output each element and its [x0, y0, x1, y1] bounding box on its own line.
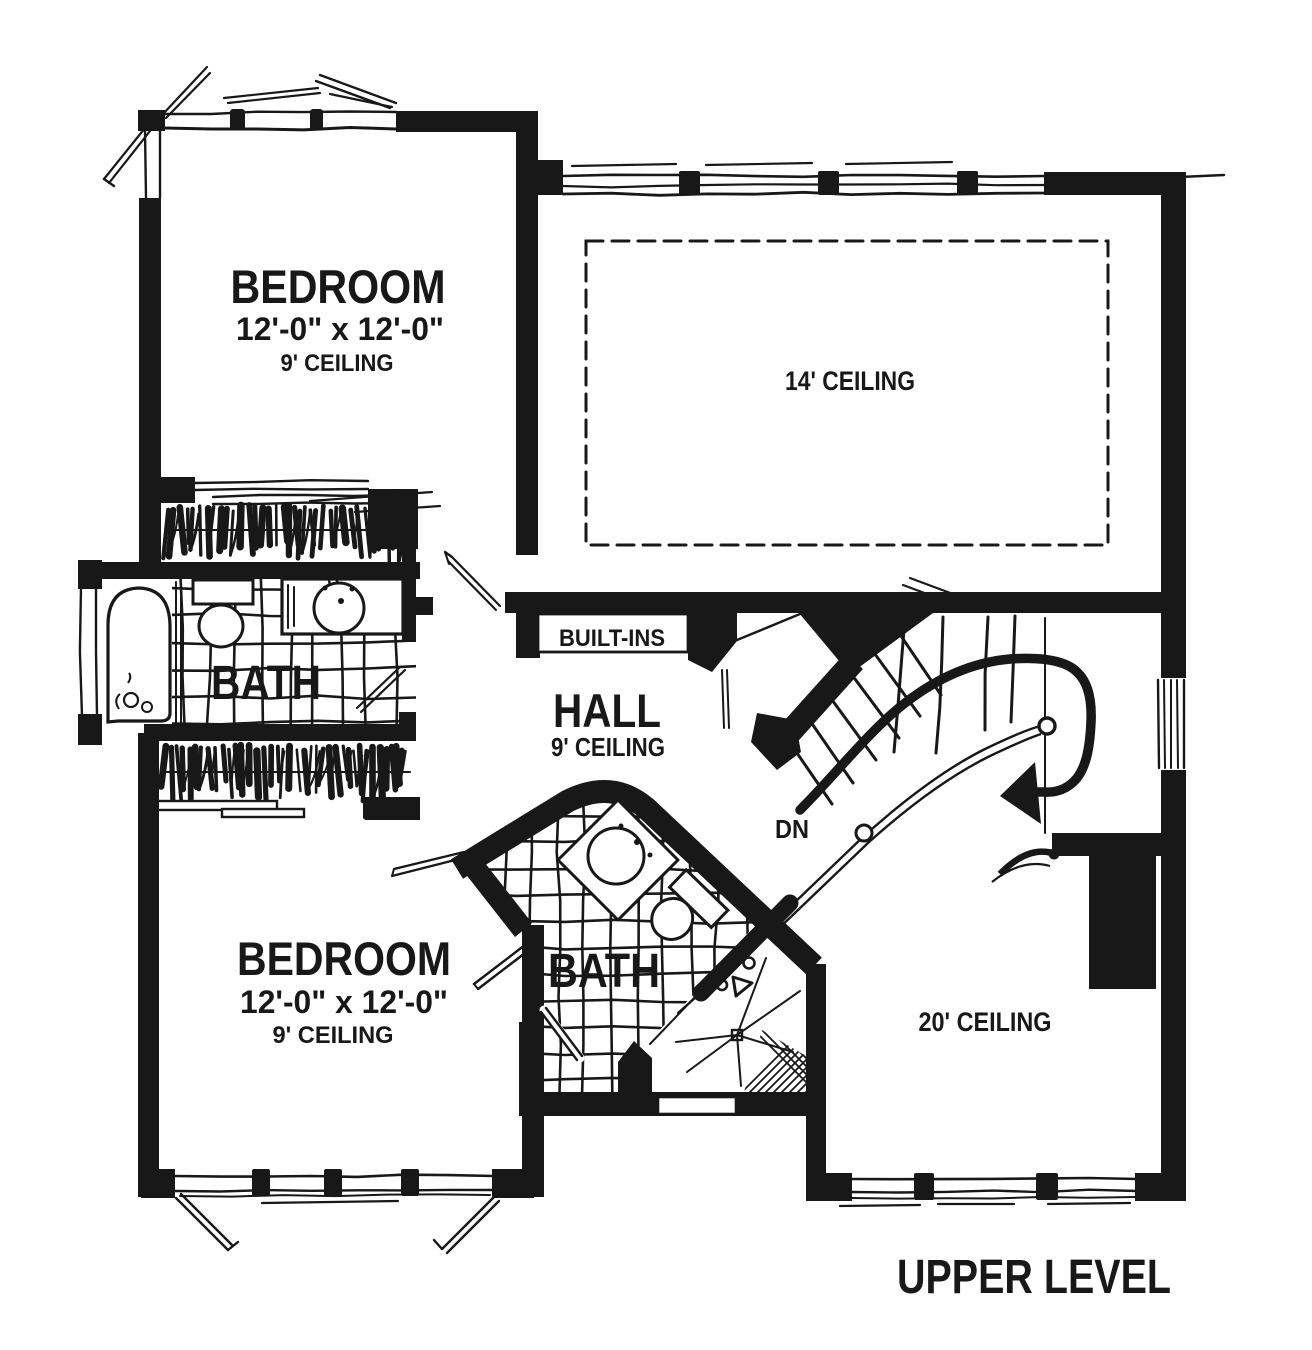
svg-text:BATH: BATH: [211, 657, 321, 710]
svg-text:20' CEILING: 20' CEILING: [919, 1007, 1052, 1037]
svg-text:BATH: BATH: [548, 945, 660, 998]
svg-text:9' CEILING: 9' CEILING: [551, 732, 665, 762]
svg-text:BEDROOM: BEDROOM: [231, 260, 446, 313]
svg-text:9' CEILING: 9' CEILING: [273, 1022, 394, 1049]
svg-text:BEDROOM: BEDROOM: [237, 932, 451, 985]
svg-text:14' CEILING: 14' CEILING: [785, 366, 915, 396]
svg-text:UPPER LEVEL: UPPER LEVEL: [897, 1251, 1171, 1304]
svg-text:BUILT-INS: BUILT-INS: [559, 625, 665, 652]
svg-text:DN: DN: [775, 814, 809, 844]
svg-text:12'-0" x 12'-0": 12'-0" x 12'-0": [240, 984, 448, 1020]
svg-text:12'-0" x 12'-0": 12'-0" x 12'-0": [236, 311, 444, 347]
svg-text:HALL: HALL: [553, 684, 661, 737]
svg-text:9' CEILING: 9' CEILING: [281, 350, 394, 377]
